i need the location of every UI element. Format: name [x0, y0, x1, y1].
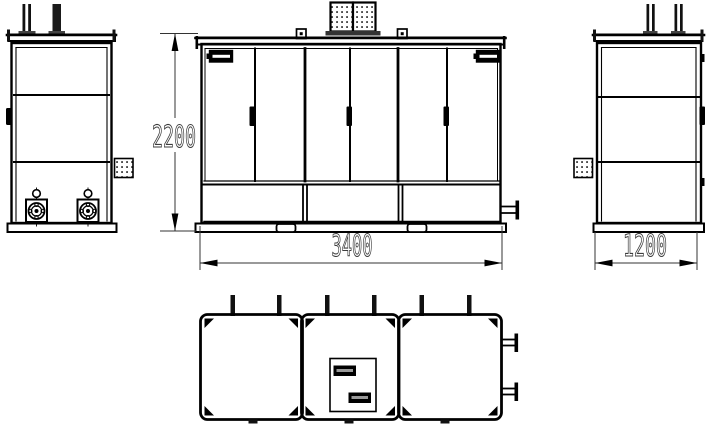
roof-panel: [201, 315, 303, 420]
dimension-height: 2200: [152, 34, 198, 232]
cable-gland-icon: [78, 188, 99, 226]
engineering-drawing: 2200 3400 1200: [0, 0, 710, 429]
top-plan-view: [201, 295, 519, 424]
base-foot: [345, 420, 354, 424]
left-side-view: [6, 4, 133, 232]
roof-pipe-stubs: [231, 295, 472, 316]
pipe-stub-icon: [502, 201, 519, 220]
right-side-view: [574, 4, 705, 232]
roof-cap: [196, 36, 506, 49]
cabinet-body: [12, 43, 112, 223]
arrow-left-icon: [595, 260, 613, 267]
vent-plate-icon: [115, 159, 134, 178]
roof-stub-icon: [231, 295, 236, 316]
name-plate-icon: [474, 51, 500, 63]
hinge-icon: [700, 54, 705, 62]
roof-stub-icon: [467, 295, 472, 316]
base-foot: [441, 420, 450, 424]
front-view: [196, 3, 520, 233]
base-foot: [249, 420, 258, 424]
louver-panels: [204, 185, 499, 222]
door-handle-icon: [6, 108, 12, 125]
name-plate-icon: [207, 51, 233, 63]
base-foot: [277, 224, 296, 232]
roof-stub-icon: [420, 295, 425, 316]
hinge-icon: [700, 178, 705, 186]
arrow-left-icon: [200, 260, 218, 267]
cable-gland-icon: [26, 188, 47, 226]
dimension-width-value: 3400: [332, 229, 373, 264]
drawing-canvas: 2200 3400 1200: [0, 0, 710, 429]
dimension-depth: 1200: [595, 229, 697, 270]
pipe-stub-icon: [502, 383, 518, 402]
door-handle-icon: [347, 107, 353, 127]
roof-stub-icon: [372, 295, 377, 316]
vent-plate-icon: [574, 159, 593, 178]
arrow-right-icon: [680, 260, 698, 267]
exhaust-opening: [330, 359, 376, 412]
arrow-down-icon: [172, 214, 179, 232]
exhaust-pipe-icon: [643, 4, 686, 34]
exhaust-pipe-icon: [19, 4, 66, 34]
base-foot: [408, 224, 427, 232]
roof-stub-icon: [325, 295, 330, 316]
roof-stub-icon: [277, 295, 282, 316]
exhaust-vent-icon: [326, 3, 381, 36]
door-handle-icon: [250, 107, 256, 127]
arrow-up-icon: [172, 34, 179, 52]
roof-panel: [399, 315, 502, 420]
door-handle-icon: [444, 107, 450, 127]
cabinet-body: [597, 43, 701, 223]
pipe-stub-icon: [502, 334, 518, 353]
dimension-height-value: 2200: [152, 120, 196, 155]
door-handle-icon: [700, 107, 706, 126]
arrow-right-icon: [485, 260, 503, 267]
dimension-depth-value: 1200: [623, 229, 667, 264]
base-skid: [8, 224, 117, 233]
